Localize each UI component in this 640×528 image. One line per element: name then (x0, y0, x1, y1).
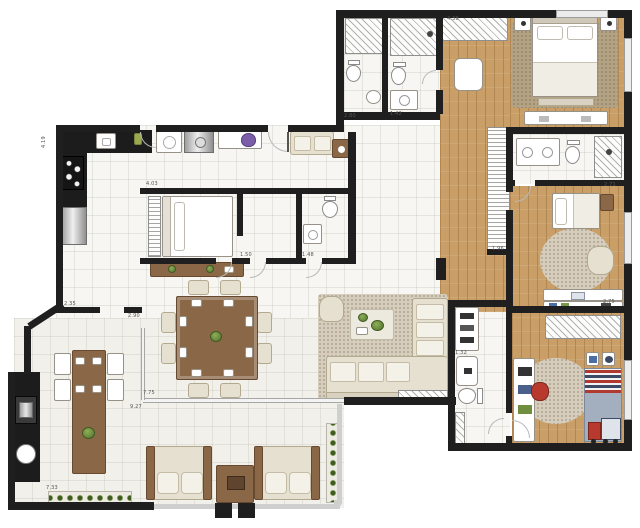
dimension-label: 2.80 (344, 114, 356, 119)
dimension-label: 4.03 (146, 182, 158, 187)
dimension-label: 1.48 (302, 253, 314, 258)
dimension-label: 1.50 (240, 253, 252, 258)
dimension-label: 2.75 (603, 300, 615, 305)
dimension-label: 7.75 (143, 391, 155, 396)
dimension-label: 9.27 (130, 405, 142, 410)
dimension-label: 2.35 (64, 302, 76, 307)
dimension-label: 4.38 (447, 17, 459, 22)
dimension-label: 2.71 (604, 183, 616, 188)
floor-plan-canvas: 4.194.032.801.424.382.711.962.751.321.50… (0, 0, 640, 528)
dimension-label: 7.33 (46, 486, 58, 491)
dimension-label: 2.90 (128, 314, 140, 319)
dimension-label: 1.96 (492, 247, 504, 252)
dimension-label: 1.32 (455, 351, 467, 356)
dimension-label: 4.19 (42, 136, 47, 148)
dimension-labels-layer: 4.194.032.801.424.382.711.962.751.321.50… (0, 0, 640, 528)
dimension-label: 1.42 (390, 112, 402, 117)
